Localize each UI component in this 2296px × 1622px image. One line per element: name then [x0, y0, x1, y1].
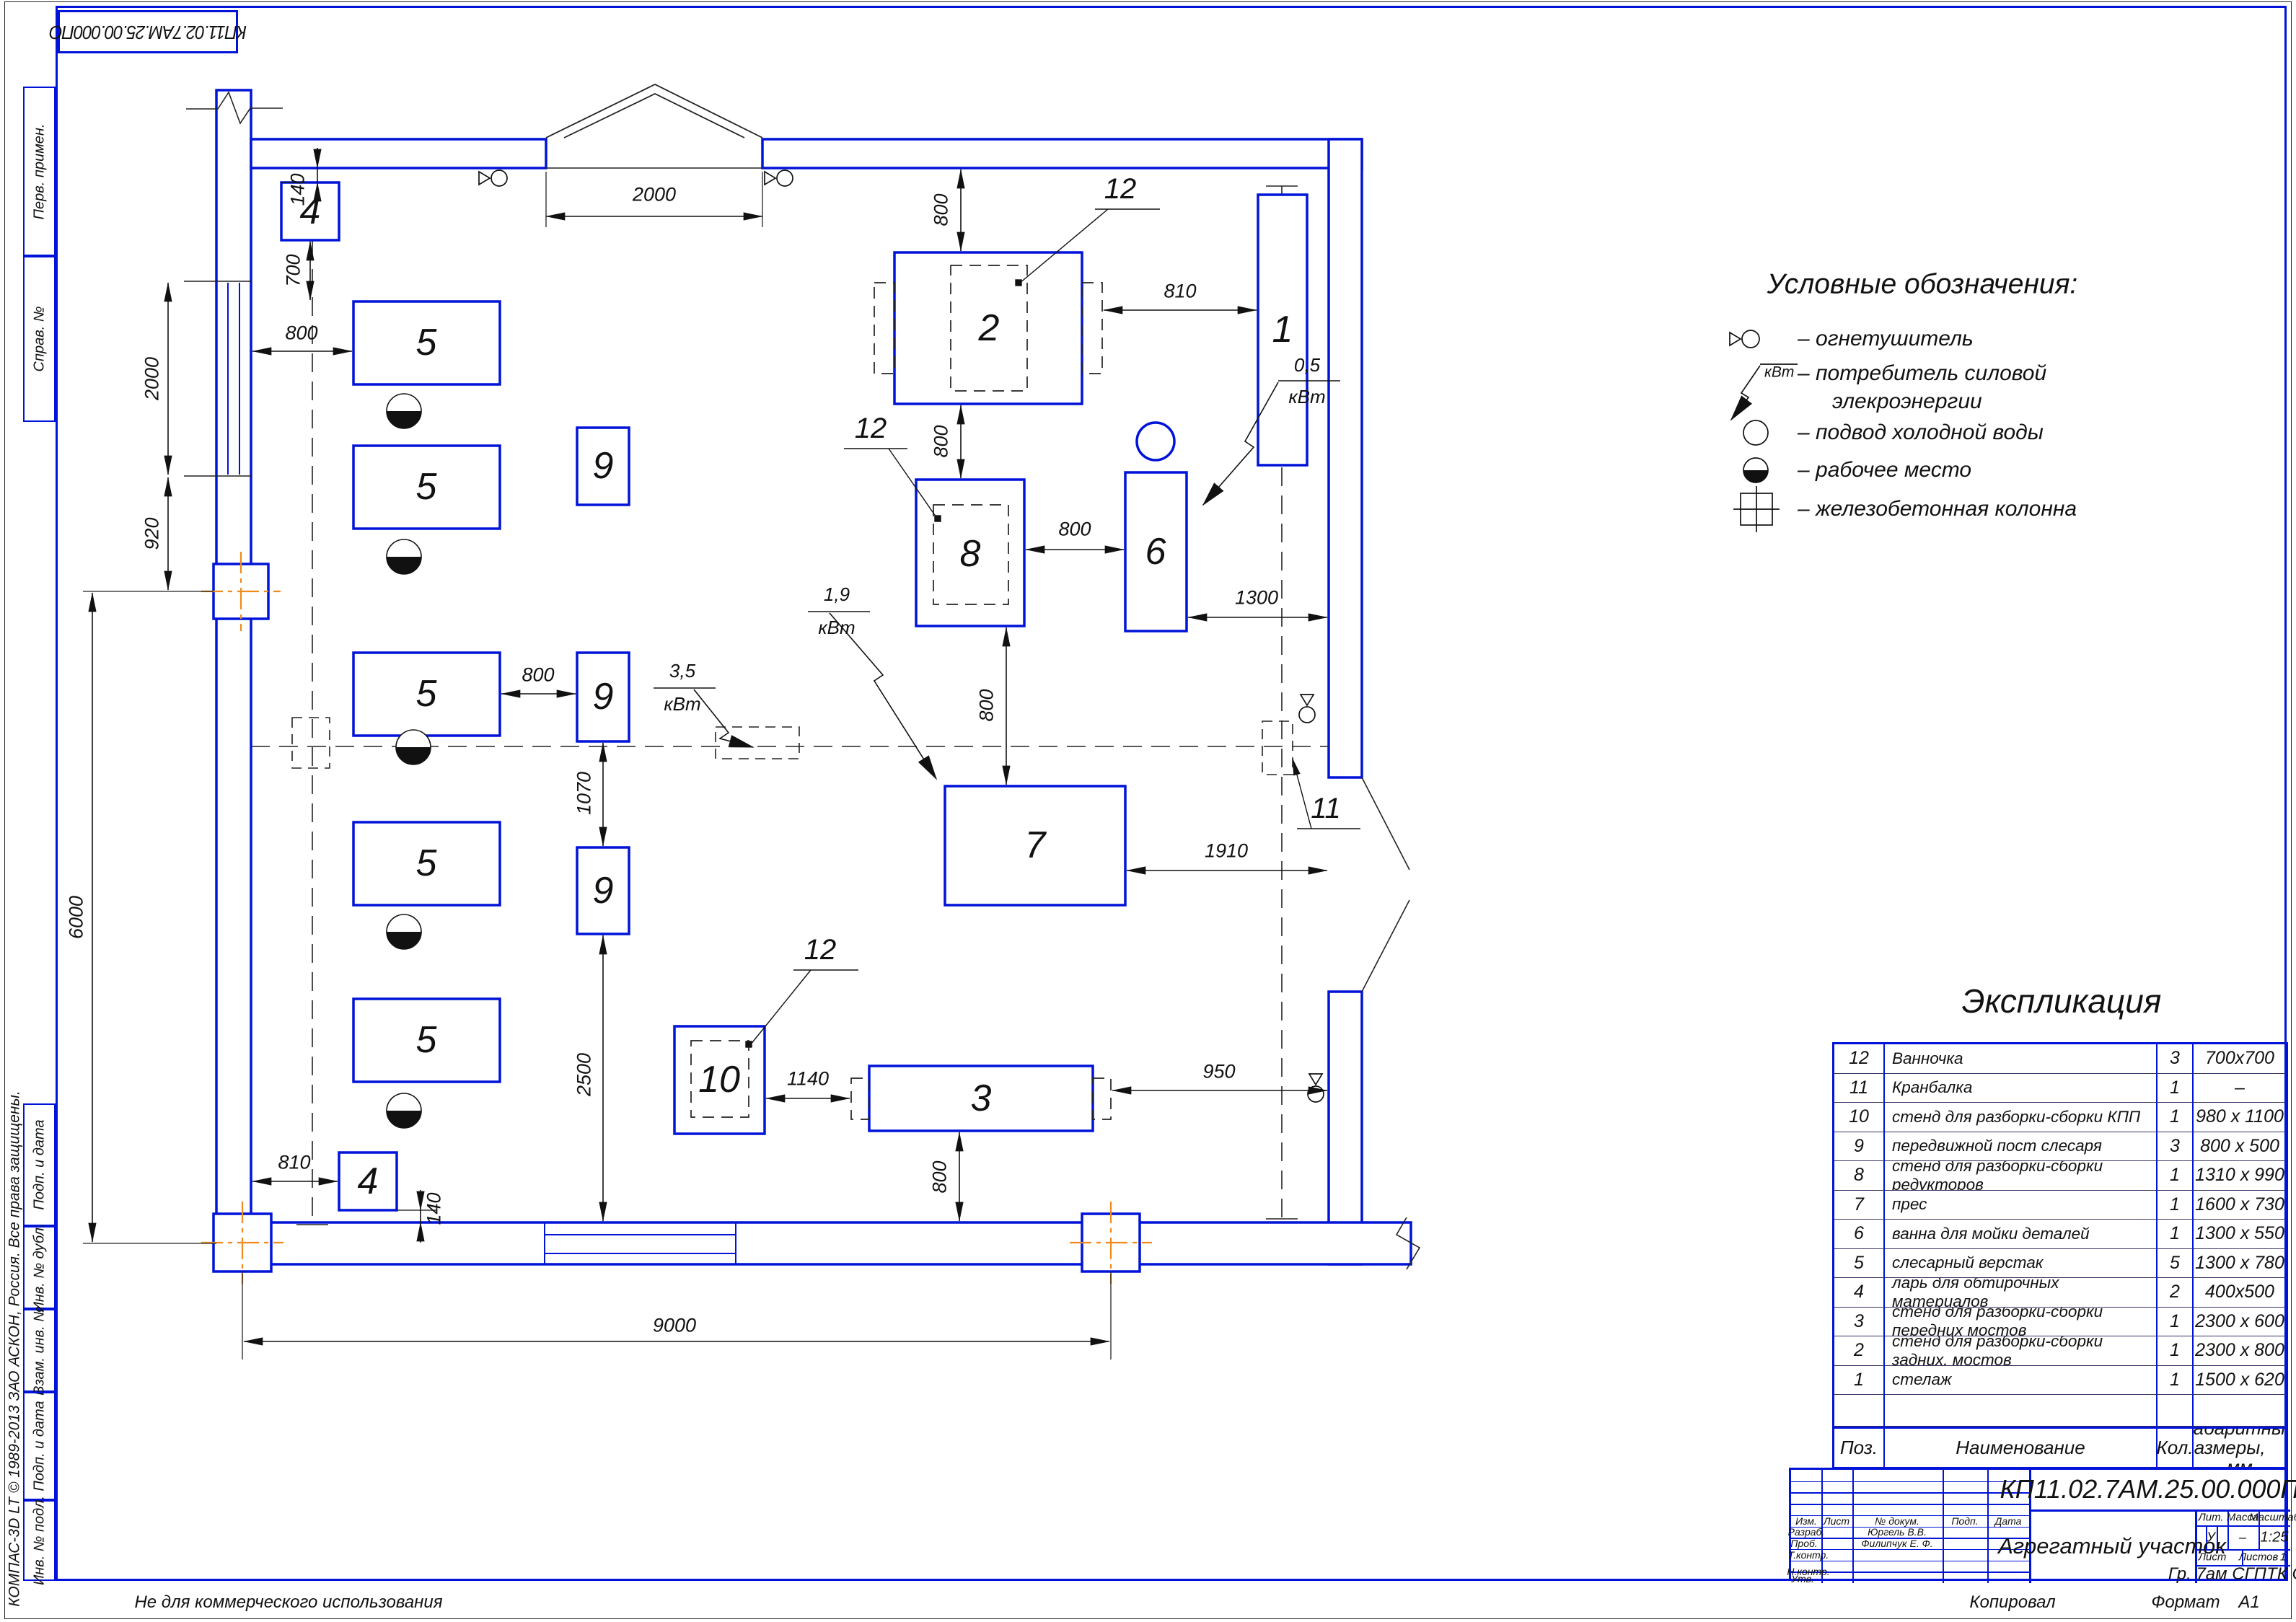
dim-800-below-2: 800: [932, 425, 951, 457]
drawing-sheet: КП11.02.7АМ.25.00.000ПО 2000 2000 920 60…: [0, 0, 2296, 1622]
expl-size: 1500 х 620: [2194, 1366, 2286, 1396]
expl-size: 980 х 1100: [2194, 1103, 2286, 1132]
expl-size: 2300 х 800: [2194, 1336, 2286, 1366]
dim-810-top: 810: [1164, 282, 1196, 301]
expl-name: ванна для мойки деталей: [1885, 1220, 2158, 1249]
dim-1910: 1910: [1205, 842, 1248, 861]
cold-water-icon: [1743, 420, 1768, 445]
expl-pos: 8: [1834, 1161, 1885, 1191]
box-6: 6: [1145, 533, 1166, 570]
tb-masshtab: 1:25: [2261, 1530, 2289, 1546]
expl-pos: 5: [1834, 1249, 1885, 1279]
dim-800-8-7: 800: [977, 689, 997, 721]
dim-800-5-9: 800: [522, 666, 554, 685]
margin-label: Перв. примен.: [31, 123, 48, 219]
expl-size: 1300 х 780: [2194, 1249, 2286, 1279]
expl-qty: 1: [2158, 1161, 2194, 1191]
format-label: Формат: [2151, 1594, 2220, 1611]
expl-qty: 1: [2158, 1336, 2194, 1366]
dim-1140: 1140: [787, 1070, 829, 1089]
margin-vzam: Взам. инв. №: [23, 1309, 56, 1392]
legend-item-water: – подвод холодной воды: [1798, 422, 2044, 444]
expl-name: Кранбалка: [1885, 1074, 2158, 1103]
door-opening-icon: [1362, 777, 1409, 992]
legend-item-column: – железобетонная колонна: [1798, 498, 2077, 520]
expl-pos: 2: [1834, 1336, 1885, 1366]
tb-col-podp: Подп.: [1951, 1515, 1978, 1527]
tb-col-doc: № докум.: [1875, 1515, 1919, 1527]
expl-size: 800 х 500: [2194, 1132, 2286, 1162]
power-35: 3,5: [669, 661, 695, 680]
expl-pos: 11: [1834, 1074, 1885, 1103]
expl-empty: [2194, 1395, 2286, 1427]
margin-podp-2: Подп. и дата: [23, 1392, 56, 1500]
expl-title: Экспликация: [1962, 984, 2162, 1018]
dim-2500: 2500: [575, 1053, 594, 1096]
expl-name: стенд для разборки-сборки КПП: [1885, 1103, 2158, 1132]
margin-perv-primen: Перв. примен.: [23, 87, 56, 256]
expl-pos: 4: [1834, 1278, 1885, 1308]
box-7: 7: [1025, 827, 1046, 864]
expl-size: 2300 х 600: [2194, 1308, 2286, 1337]
expl-qty: 5: [2158, 1249, 2194, 1279]
dim-140-bottom: 140: [425, 1192, 444, 1225]
corner-stamp: КП11.02.7АМ.25.00.000ПО: [58, 10, 238, 53]
margin-inv-podl: Инв. № подл.: [23, 1500, 56, 1581]
expl-header-size: Габаритные размеры, мм: [2194, 1427, 2286, 1467]
box-4-top: 4: [300, 193, 321, 230]
expl-name: стелаж: [1885, 1366, 2158, 1396]
expl-pos: 12: [1834, 1044, 1885, 1074]
dim-950: 950: [1202, 1062, 1235, 1082]
tb-utv: Утв.: [1791, 1573, 1814, 1584]
dim-800-8-6: 800: [1058, 520, 1091, 539]
tb-masshtab-label: Масштаб: [2249, 1512, 2296, 1524]
box-8: 8: [960, 535, 981, 573]
legend-title: Условные обозначения:: [1767, 270, 2078, 299]
dim-wall-left: 6000: [67, 896, 87, 939]
not-commercial-note: Не для коммерческого использования: [134, 1594, 442, 1611]
tb-lit: У: [2207, 1530, 2215, 1546]
expl-name: прес: [1885, 1191, 2158, 1220]
expl-qty: 1: [2158, 1074, 2194, 1103]
expl-size: 400х500: [2194, 1278, 2286, 1308]
dim-1300: 1300: [1235, 589, 1278, 608]
dim-window: 2000: [143, 357, 162, 400]
tb-prov-name: Филипчук Е. Ф.: [1861, 1538, 1932, 1549]
tb-col-data: Дата: [1995, 1515, 2022, 1527]
tb-list-label: Лист: [2199, 1551, 2227, 1564]
power-05: 0,5: [1294, 356, 1320, 374]
tb-tkontr: Т.контр.: [1788, 1549, 1829, 1561]
expl-qty: 1: [2158, 1366, 2194, 1396]
expl-pos: 3: [1834, 1308, 1885, 1337]
dim-pier: 920: [143, 517, 162, 550]
margin-label: Инв. № подл.: [31, 1496, 48, 1585]
margin-label: Справ. №: [31, 307, 48, 372]
tb-doc-number: КП11.02.7АМ.25.00.000ПО: [2000, 1474, 2296, 1504]
water-supply-icon: [1137, 423, 1174, 460]
legend-icons: [1730, 330, 1798, 532]
legend-kwt-label: кВт: [1764, 365, 1794, 380]
dim-gate: 2000: [633, 185, 676, 205]
concrete-column-icon: [1733, 486, 1780, 532]
margin-label: Инв. № дубл.: [31, 1223, 48, 1312]
expl-table: 12Ванночка3700х700 11Кранбалка1– 10стенд…: [1832, 1042, 2288, 1469]
expl-pos: 1: [1834, 1366, 1885, 1396]
box-10: 10: [698, 1061, 740, 1098]
workplace-icon: [1743, 458, 1768, 482]
callout-12-a: 12: [1104, 175, 1137, 203]
box-1: 1: [1272, 311, 1293, 348]
margin-podp-1: Подп. и дата: [23, 1103, 56, 1226]
dim-1070: 1070: [575, 772, 594, 815]
expl-size: –: [2194, 1074, 2286, 1103]
expl-pos: 9: [1834, 1132, 1885, 1162]
tb-massa: –: [2239, 1530, 2246, 1546]
expl-size: 1600 х 730: [2194, 1191, 2286, 1220]
expl-empty: [1885, 1395, 2158, 1427]
legend-item-power: – потребитель силовой: [1798, 363, 2046, 384]
expl-header-name: Наименование: [1885, 1427, 2158, 1467]
tb-col-izm: Изм.: [1795, 1515, 1817, 1527]
fire-extinguisher-icon: [1730, 330, 1759, 348]
legend-item-power-2: элекроэнергии: [1832, 391, 1982, 413]
expl-name: стенд для разборки-сборки задних. мостов: [1885, 1336, 2158, 1366]
dim-700: 700: [284, 254, 304, 286]
margin-sprav: Справ. №: [23, 256, 56, 422]
expl-header-qty: Кол.: [2158, 1427, 2194, 1467]
callout-12-b: 12: [855, 414, 887, 443]
tb-razrab-name: Юргель В.В.: [1868, 1526, 1927, 1538]
wall-windows: [228, 283, 736, 1264]
callout-12-c: 12: [804, 935, 837, 964]
expl-pos: 6: [1834, 1220, 1885, 1249]
tb-title: Агрегатный участок: [1998, 1533, 2226, 1559]
margin-label: Взам. инв. №: [31, 1306, 48, 1396]
expl-pos: 10: [1834, 1103, 1885, 1132]
tb-group: Гр. 7ам СГПТК СП: [2168, 1564, 2296, 1584]
box-5-4: 5: [416, 845, 437, 882]
expl-qty: 1: [2158, 1191, 2194, 1220]
expl-name: передвижной пост слесаря: [1885, 1132, 2158, 1162]
box-5-3: 5: [416, 675, 437, 713]
kompas-note: КОМПАС-3D LT © 1989-2013 ЗАО АСКОН, Росс…: [7, 1090, 22, 1607]
box-9-2: 9: [593, 678, 614, 715]
expl-size: 700х700: [2194, 1044, 2286, 1074]
dim-800-wall: 800: [285, 324, 317, 343]
expl-name: стенд для разборки-сборки редукторов: [1885, 1161, 2158, 1191]
expl-qty: 1: [2158, 1308, 2194, 1337]
title-block: Изм. Лист № докум. Подп. Дата Разраб. Юр…: [1789, 1468, 2288, 1581]
dim-800-below-3: 800: [931, 1160, 950, 1193]
tb-prov: Проб.: [1790, 1538, 1817, 1549]
legend-item-workplace: – рабочее место: [1798, 459, 1971, 481]
expl-name: Ванночка: [1885, 1044, 2158, 1074]
box-9-3: 9: [593, 872, 614, 909]
expl-qty: 3: [2158, 1132, 2194, 1162]
margin-inv-dubl: Инв. № дубл.: [23, 1226, 56, 1309]
expl-qty: 1: [2158, 1103, 2194, 1132]
tb-col-list: Лист: [1824, 1515, 1849, 1527]
box-4-bottom: 4: [358, 1163, 379, 1200]
expl-header-size-1: Габаритные размеры,: [2194, 1427, 2286, 1458]
dim-800-above-2: 800: [932, 193, 951, 226]
tb-razrab: Разраб.: [1788, 1526, 1825, 1538]
format-value: А1: [2238, 1594, 2259, 1611]
expl-qty: 3: [2158, 1044, 2194, 1074]
tb-lit-label: Лит.: [2198, 1512, 2223, 1524]
dim-wall-bottom: 9000: [653, 1316, 696, 1336]
power-35-unit: кВт: [664, 695, 700, 713]
power-05-unit: кВт: [1288, 387, 1325, 406]
expl-empty: [2158, 1395, 2194, 1427]
dim-810-bottom: 810: [278, 1153, 310, 1173]
expl-name: стенд для разборки-сборки передних мосто…: [1885, 1308, 2158, 1337]
box-2: 2: [979, 309, 1000, 347]
box-5-5: 5: [416, 1021, 437, 1059]
expl-qty: 1: [2158, 1220, 2194, 1249]
kopiroval-label: Копировал: [1969, 1594, 2055, 1611]
tb-listov: 1: [2280, 1551, 2286, 1564]
legend-item-extinguisher: – огнетушитель: [1798, 328, 1974, 350]
callout-11: 11: [1311, 794, 1341, 823]
stamp-doc-number: КП11.02.7АМ.25.00.000ПО: [49, 21, 246, 43]
margin-label: Подп. и дата: [31, 1119, 48, 1209]
expl-header-pos: Поз.: [1834, 1427, 1885, 1467]
expl-header-size-2: мм: [2227, 1458, 2253, 1467]
box-5-2: 5: [416, 468, 437, 506]
box-9-1: 9: [593, 447, 614, 485]
margin-label: Подп. и дата: [31, 1401, 48, 1491]
expl-size: 1300 х 550: [2194, 1220, 2286, 1249]
tb-listov-label: Листов: [2239, 1551, 2279, 1564]
power-19-unit: кВт: [818, 618, 855, 637]
expl-qty: 2: [2158, 1278, 2194, 1308]
expl-name: ларь для обтирочных материалов: [1885, 1278, 2158, 1308]
expl-pos: 7: [1834, 1191, 1885, 1220]
power-19: 1,9: [824, 585, 850, 604]
box-5-1: 5: [416, 324, 437, 361]
gate-icon: [546, 84, 762, 168]
expl-size: 1310 х 990: [2194, 1161, 2286, 1191]
expl-empty: [1834, 1395, 1885, 1427]
box-3: 3: [971, 1080, 992, 1117]
expl-name: слесарный верстак: [1885, 1249, 2158, 1279]
